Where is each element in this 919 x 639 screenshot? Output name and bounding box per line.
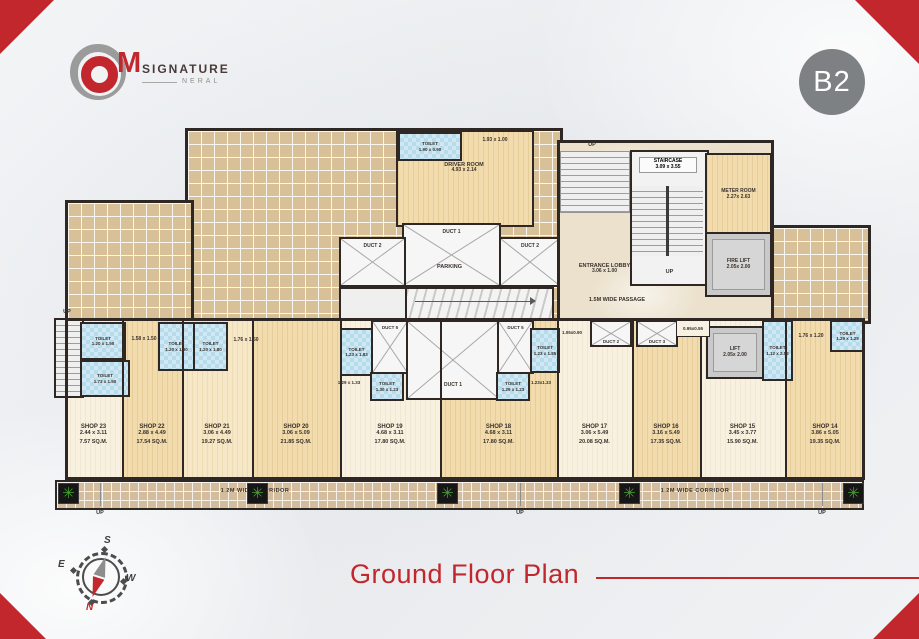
shop-area: 17.54 SQ.M. (123, 439, 181, 445)
toilet: TOILET1.12 x 2.52 (762, 320, 793, 381)
logo-m: M (117, 47, 141, 80)
logo-signature: SIGNATURE (142, 62, 230, 76)
shop-wall (632, 318, 634, 480)
driver-room-label: DRIVER ROOM 4.93 x 2.14 (398, 162, 530, 174)
room-dims: 1.29 x 1.29 (836, 336, 859, 341)
floor-plan-page: M SIGNATURE NERAL B2 TOILET1.90 x 0.90 1… (0, 0, 919, 639)
shop-label: SHOP 194.68 x 3.1117.80 SQ.M. (341, 424, 439, 445)
ramp-landing (339, 287, 409, 320)
small-duct: 0.95x0.55 (676, 320, 710, 337)
ramp-arrow-line (415, 301, 530, 302)
compass-north: N (86, 602, 93, 613)
lift: LIFT2.05x 2.00 (706, 326, 764, 379)
staircase-label-box: STAIRCASE 3.09 x 3.55 (639, 157, 697, 173)
shop-label: SHOP 203.06 x 5.0921.85 SQ.M. (253, 424, 339, 445)
shop-label: SHOP 213.06 x 4.4919.27 SQ.M. (183, 424, 251, 445)
duct-label: DUCT 5 (373, 325, 407, 330)
room-dims: 2.27x 2.63 (727, 195, 751, 201)
compass-south: S (104, 535, 111, 546)
shop-area: 15.90 SQ.M. (701, 439, 784, 445)
shop-area: 19.27 SQ.M. (183, 439, 251, 445)
room-dims: 1.90 x 0.90 (419, 147, 442, 152)
logo-neral: NERAL (182, 78, 220, 85)
room-dims: 1.30 x 1.23 (376, 387, 399, 392)
toilet: TOILET1.73 x 1.50 (80, 360, 130, 397)
up-label-corridor: UP (92, 510, 108, 516)
ramp (405, 287, 554, 320)
toilet: TOILET1.23 x 1.83 (340, 328, 373, 376)
title-rule (596, 577, 919, 579)
room-dims: 1.20 x 1.80 (165, 347, 188, 352)
room-dims: 1.29 x 1.23 (502, 387, 525, 392)
room-dims: 1.20 x 1.50 (92, 341, 115, 346)
corner-triangle-top-left (0, 0, 54, 54)
shop-label: SHOP 232.44 x 3.117.57 SQ.M. (66, 424, 121, 445)
up-leader-line (822, 483, 823, 506)
compass-east: E (58, 559, 65, 570)
plant-icon: ✳ (437, 483, 458, 504)
room-dims: 2.05x 2.00 (723, 353, 747, 359)
shop-dims: 2.44 x 3.11 (66, 430, 121, 436)
room-dims: 1.12 x 2.52 (766, 351, 789, 356)
up-label-staircase: UP (632, 269, 707, 275)
shop-area: 19.35 SQ.M. (786, 439, 864, 445)
duct-label: DUCT 2 (501, 243, 559, 249)
shop-label: SHOP 173.06 x 5.4920.08 SQ.M. (558, 424, 631, 445)
duct-1-upper: DUCT 1 (402, 223, 501, 287)
shop-area: 17.80 SQ.M. (441, 439, 556, 445)
plant-icon: ✳ (58, 483, 79, 504)
up-leader-line (520, 483, 521, 506)
shop-wall (440, 318, 442, 480)
open-dims: 1.29 x 1.33 (332, 380, 366, 385)
shop-label: SHOP 153.45 x 3.7715.90 SQ.M. (701, 424, 784, 445)
ramp-arrow-head-icon (530, 297, 536, 305)
shop-area: 17.35 SQ.M. (633, 439, 699, 445)
compass-icon: S E W N (64, 542, 134, 612)
shop-label: SHOP 163.16 x 5.4917.35 SQ.M. (633, 424, 699, 445)
logo: M SIGNATURE NERAL (62, 38, 242, 110)
toilet: TOILET1.29 x 1.29 (830, 320, 865, 352)
compass-west: W (126, 573, 135, 584)
shop-area: 21.85 SQ.M. (253, 439, 339, 445)
duct-2-mid: DUCT 2 (590, 320, 632, 347)
duct-3-mid: DUCT 3 (636, 320, 678, 347)
up-leader-line (100, 483, 101, 506)
duct-5-left: DUCT 5 (371, 320, 409, 374)
shop-dims: 4.68 x 3.11 (341, 430, 439, 436)
parking-label: PARKING (402, 264, 497, 270)
corner-triangle-bottom-right (873, 593, 919, 639)
up-label-left: UP (52, 309, 82, 315)
duct-5-right: DUCT 5 (497, 320, 534, 374)
open-dims: 1.23x1.33 (527, 380, 555, 385)
open-dims: 1.05x0.90 (556, 330, 588, 335)
shop-label: SHOP 143.86 x 5.0519.35 SQ.M. (786, 424, 864, 445)
shop-wall (700, 318, 702, 480)
room-dims: 3.09 x 3.55 (640, 165, 696, 171)
toilet: TOILET1.20 x 1.50 (80, 322, 126, 360)
up-label-top: UP (581, 142, 603, 148)
terrace-tiles-left (65, 200, 194, 324)
open-area-dims: 1.93 x 1.00 (462, 138, 528, 144)
corridor (55, 480, 864, 510)
corridor-label-right: 1.2M WIDE CORRIDOR (580, 488, 810, 494)
open-dims: 1.76 x 1.50 (226, 338, 266, 344)
duct-label: DUCT 5 (499, 325, 532, 330)
toilet: TOILET1.20 x 1.80 (193, 322, 228, 371)
duct-label: DUCT 2 (341, 243, 404, 249)
page-title: Ground Floor Plan (350, 559, 579, 590)
shop-area: 20.08 SQ.M. (558, 439, 631, 445)
room-dims: 1.23 x 1.83 (345, 352, 368, 357)
up-label-corridor: UP (814, 510, 830, 516)
duct-2-left: DUCT 2 (339, 237, 406, 287)
open-dims: 1.58 x 1.50 (124, 337, 164, 343)
corner-triangle-top-right (855, 0, 919, 64)
logo-divider-line (142, 82, 177, 83)
driver-toilet: TOILET1.90 x 0.90 (398, 132, 462, 161)
shop-label: SHOP 222.88 x 4.4917.54 SQ.M. (123, 424, 181, 445)
shop-dims: 3.86 x 5.05 (786, 430, 864, 436)
shop-dims: 3.06 x 5.09 (253, 430, 339, 436)
duct-label: DUCT 3 (638, 339, 676, 344)
duct-1-big: DUCT 1 (406, 320, 500, 400)
shop-dims: 2.88 x 4.49 (123, 430, 181, 436)
room-dims: 4.93 x 2.14 (398, 168, 530, 174)
lobby-stairs-upper (560, 151, 630, 213)
shop-area: 17.80 SQ.M. (341, 439, 439, 445)
shop-area: 7.57 SQ.M. (66, 439, 121, 445)
logo-ring-red-icon (81, 56, 118, 93)
shop-dims: 3.45 x 3.77 (701, 430, 784, 436)
room-dims: 0.95x0.55 (683, 326, 703, 331)
open-dims: 1.76 x 1.20 (792, 334, 830, 340)
staircase-divider (666, 186, 669, 256)
building-badge: B2 (799, 49, 865, 115)
room-dims: 2.05x 2.00 (727, 265, 751, 271)
toilet: TOILET1.29 x 1.23 (496, 372, 530, 401)
plant-icon: ✳ (843, 483, 864, 504)
plant-icon: ✳ (247, 483, 268, 504)
room-dims: 1.23 x 1.85 (534, 351, 557, 356)
toilet: TOILET1.30 x 1.23 (370, 372, 404, 401)
corner-triangle-bottom-left (0, 593, 46, 639)
room-dims: 1.20 x 1.80 (199, 347, 222, 352)
shop-dims: 3.06 x 4.49 (183, 430, 251, 436)
meter-room: METER ROOM2.27x 2.63 (705, 153, 772, 236)
duct-label: DUCT 1 (408, 382, 498, 388)
duct-label: DUCT 1 (404, 229, 499, 235)
plant-icon: ✳ (619, 483, 640, 504)
duct-2-right: DUCT 2 (499, 237, 561, 287)
toilet: TOILET1.20 x 1.80 (158, 322, 195, 371)
room-dims: 1.73 x 1.50 (94, 379, 117, 384)
duct-label: DUCT 2 (592, 339, 630, 344)
up-label-corridor: UP (512, 510, 528, 516)
shop-dims: 3.16 x 5.49 (633, 430, 699, 436)
fire-lift: FIRE LIFT2.05x 2.00 (705, 232, 772, 297)
terrace-tiles-right (768, 225, 871, 324)
shop-label: SHOP 184.68 x 3.1117.80 SQ.M. (441, 424, 556, 445)
shop-dims: 4.68 x 3.11 (441, 430, 556, 436)
shop-dims: 3.06 x 5.49 (558, 430, 631, 436)
passage-label: 1.5M WIDE PASSAGE (557, 297, 677, 303)
